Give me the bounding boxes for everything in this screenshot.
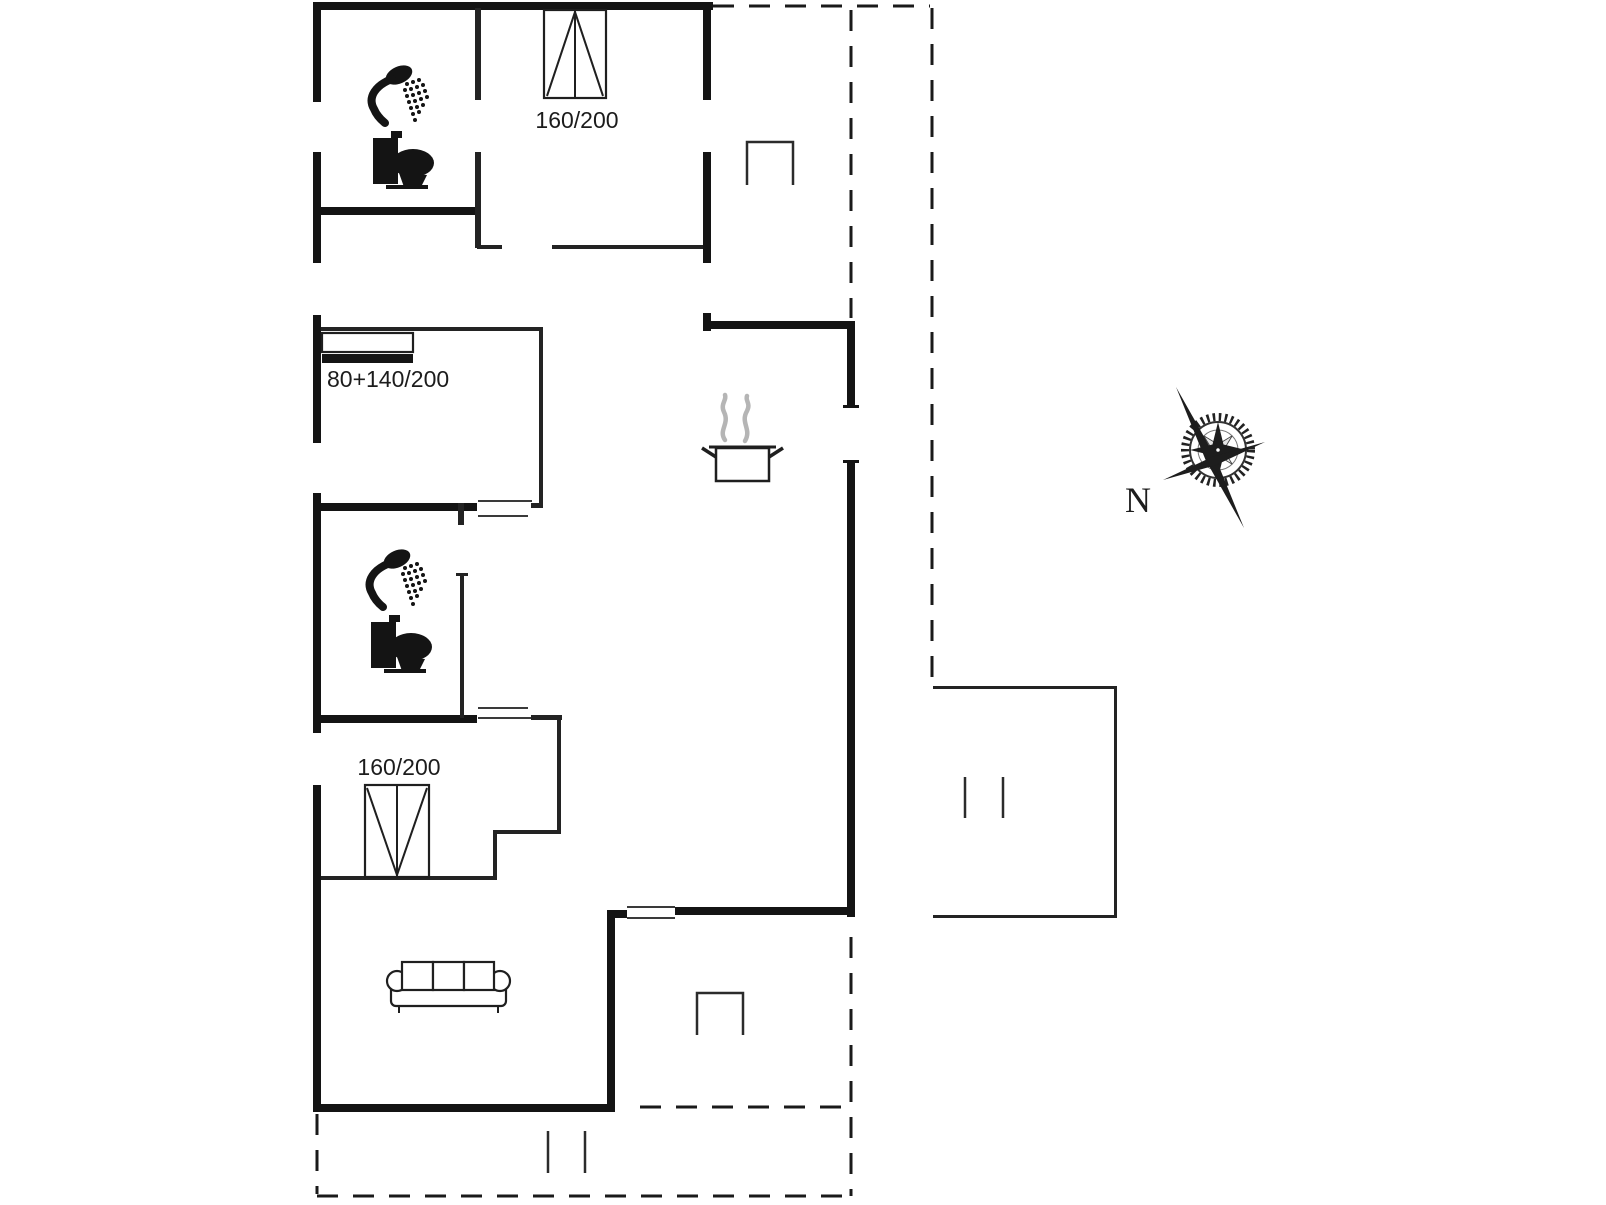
wall-left-seg4 — [313, 493, 321, 733]
kitchen-wall-east-seg1 — [847, 321, 855, 408]
bed-middle-size-label: 80+140/200 — [327, 366, 449, 392]
bedroom-top-south-wall-stub — [477, 245, 502, 249]
bathroom-mid-south-wall — [321, 715, 477, 723]
bedroom-mid-north-wall — [321, 327, 543, 331]
compass-north-label: N — [1125, 480, 1151, 520]
wall-right-seg2 — [703, 152, 711, 263]
steam-line — [745, 396, 749, 441]
bedroom-low-east-wall — [557, 715, 561, 833]
window-south-line1 — [627, 906, 675, 908]
chair-icon — [697, 993, 743, 1035]
window-hall-lower-line1 — [478, 707, 528, 709]
door-cap-1 — [843, 405, 859, 408]
double-bed-icon — [365, 785, 429, 877]
living-room — [387, 962, 510, 1013]
steam-line — [723, 395, 726, 440]
bathroom-top-east-wall-seg1 — [475, 8, 481, 100]
bunk-bed-icon — [322, 333, 413, 363]
kitchen-wall-north — [703, 321, 855, 329]
window-hall-upper-line1 — [478, 500, 532, 502]
window-hall-lower-line2 — [478, 717, 531, 719]
bed-top-size-label: 160/200 — [535, 107, 618, 133]
bathroom-top — [372, 62, 434, 189]
bed-lower-size-label: 160/200 — [357, 754, 440, 780]
shower-icon — [370, 546, 427, 607]
bedroom-mid-corner-foot — [531, 503, 543, 508]
annex-south-wall — [933, 915, 1117, 918]
bedroom-top: 160/200 — [535, 10, 618, 133]
bathroom-middle — [370, 546, 432, 673]
window-south-line2 — [627, 917, 675, 919]
bathroom-top-east-wall-seg2 — [475, 152, 481, 248]
bedroom-lower: 160/200 — [357, 754, 440, 877]
terrace-bottom-area — [697, 993, 743, 1035]
annex-north-wall — [933, 686, 1117, 689]
kitchen-wall-east-seg2 — [847, 460, 855, 917]
bathroom-mid-north-wall — [321, 503, 477, 511]
toilet-icon — [373, 131, 434, 189]
double-bed-icon — [544, 10, 606, 98]
wall-south-mid — [675, 907, 855, 915]
bathroom-top-south-wall — [318, 207, 481, 215]
windows — [478, 500, 675, 919]
floorplan-drawing: 160/200 80+140/200 160/200 — [0, 0, 1606, 1205]
compass-needle-nw-se — [1176, 387, 1244, 528]
wall-left-seg1 — [313, 2, 321, 102]
bedroom-low-step-vertical — [493, 830, 497, 878]
window-hall-upper-line2 — [478, 515, 528, 517]
wall-left-seg3 — [313, 315, 321, 443]
annex-walls — [933, 686, 1117, 918]
bedroom-top-south-wall — [552, 245, 703, 249]
kitchen — [702, 395, 783, 481]
opening-ticks — [548, 777, 1003, 1173]
wall-bottom — [313, 1104, 615, 1112]
chair-icon — [747, 142, 793, 185]
window-cap-tick — [458, 503, 464, 525]
cooking-pot-icon — [702, 395, 783, 481]
bathroom-mid-east-wall — [460, 575, 464, 718]
bedroom-middle: 80+140/200 — [322, 333, 449, 392]
annex-east-wall — [1114, 686, 1117, 918]
bedroom-low-step-horizontal — [493, 830, 561, 834]
toilet-icon — [371, 615, 432, 673]
terrace-top-area — [747, 142, 793, 185]
sofa-icon — [387, 962, 510, 1013]
bedroom-mid-east-wall — [539, 327, 543, 503]
shower-icon — [372, 62, 429, 123]
wall-top — [313, 2, 713, 10]
floorplan-page: 160/200 80+140/200 160/200 — [0, 0, 1606, 1205]
wall-left-seg5 — [313, 785, 321, 1112]
compass-rose-icon: N — [1125, 387, 1265, 528]
wall-southwest-vertical — [607, 910, 615, 1112]
wall-right-seg1 — [703, 2, 711, 100]
door-cap-2 — [843, 460, 859, 463]
